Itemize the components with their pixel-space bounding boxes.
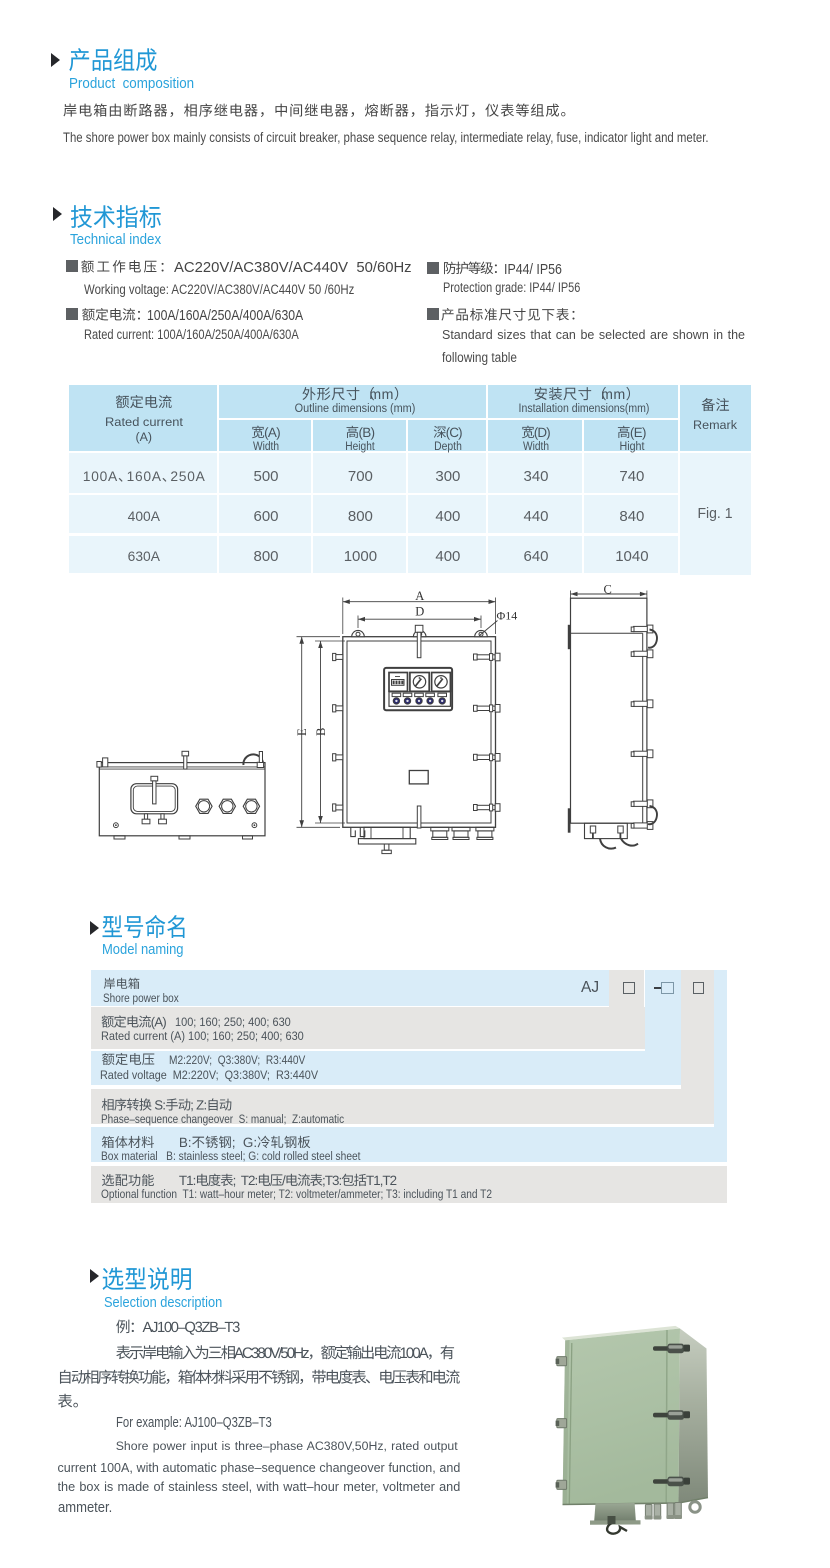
svg-text:E: E xyxy=(295,728,309,736)
svg-text:A: A xyxy=(415,589,424,603)
svg-text:D: D xyxy=(415,605,424,619)
svg-text:Φ14: Φ14 xyxy=(497,609,518,623)
svg-text:C: C xyxy=(604,583,612,597)
svg-text:B: B xyxy=(314,728,328,736)
